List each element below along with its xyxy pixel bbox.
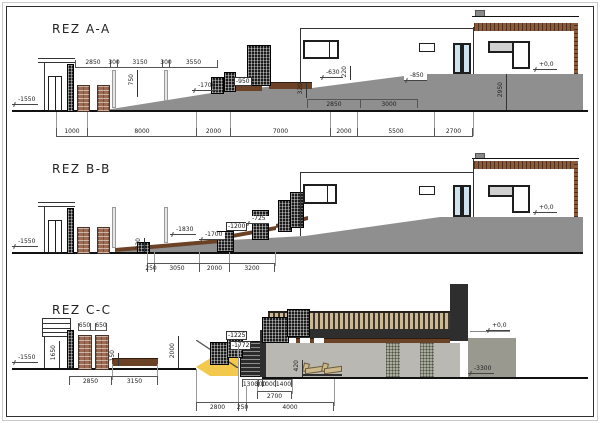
section-title: REZ B-B bbox=[52, 162, 111, 176]
hatched-column bbox=[420, 343, 434, 377]
dim-row-stairs-2: 2700 bbox=[257, 391, 292, 399]
dim-line bbox=[137, 70, 138, 97]
window-small bbox=[419, 43, 435, 52]
gabion-pier bbox=[67, 208, 74, 254]
door-divider bbox=[55, 221, 56, 252]
dim-line bbox=[59, 341, 60, 368]
window-l-vertical bbox=[512, 41, 530, 69]
window-large bbox=[303, 40, 339, 59]
pergola-post bbox=[164, 70, 168, 101]
extension-line bbox=[196, 369, 197, 406]
hatched-column bbox=[386, 343, 400, 377]
dim-label-vertical: 220 bbox=[342, 66, 348, 77]
pergola-post bbox=[164, 207, 168, 243]
level-mark: -1550 bbox=[12, 97, 38, 105]
dim-row-piers: 650 650 bbox=[78, 323, 107, 331]
extension-line bbox=[275, 252, 276, 266]
door bbox=[48, 76, 62, 111]
level-mark: -1700 bbox=[192, 83, 218, 91]
section-title: REZ A-A bbox=[52, 22, 111, 36]
level-mark: -725 bbox=[246, 216, 269, 224]
dim-label-vertical: 750 bbox=[129, 74, 135, 85]
level-box: -1225 bbox=[226, 331, 247, 340]
level-mark: -1550 bbox=[12, 239, 38, 247]
dim-label: 650 bbox=[86, 323, 116, 329]
dim-row-left-bottom: 2850 3150 bbox=[69, 376, 158, 385]
brick-pier bbox=[78, 335, 92, 370]
chair-base bbox=[303, 374, 323, 376]
dim-segment: 1400 bbox=[275, 379, 292, 387]
canopy-line bbox=[38, 202, 75, 203]
dim-label-vertical: 1650 bbox=[51, 345, 57, 360]
level-mark: -850 bbox=[404, 73, 427, 81]
dim-line bbox=[118, 353, 119, 366]
extension-line bbox=[334, 379, 335, 406]
wall-edge bbox=[473, 27, 474, 74]
dim-row-bottom: 250 3050 2000 3200 bbox=[147, 263, 275, 272]
dim-row-mid: 2850 3000 bbox=[307, 99, 418, 108]
window-divider bbox=[329, 42, 330, 57]
roof-top-line bbox=[472, 158, 579, 159]
dim-label-vertical: 2000 bbox=[170, 343, 176, 358]
dim-segment: 3200 bbox=[229, 263, 275, 272]
roof-top-line bbox=[472, 16, 579, 17]
roof-wood-fascia bbox=[474, 161, 577, 169]
dim-row-bottom: 1000 8000 2000 7000 2000 5500 2700 bbox=[56, 128, 473, 137]
level-box: -1772 bbox=[230, 341, 251, 350]
door-glass bbox=[455, 187, 460, 215]
dim-segment: 5500 bbox=[357, 128, 434, 137]
chair-base bbox=[322, 374, 342, 376]
dim-label-vertical: 2950 bbox=[498, 82, 504, 97]
dim-label-vertical: 420 bbox=[294, 360, 300, 371]
chimney-wall bbox=[450, 284, 468, 341]
dim-label: 3150 bbox=[102, 379, 167, 385]
dim-label: 3550 bbox=[160, 60, 227, 66]
level-mark: -1700 bbox=[199, 232, 225, 240]
dim-label: 3200 bbox=[220, 266, 284, 272]
wall-top-line bbox=[300, 28, 473, 29]
lounge-chair bbox=[303, 363, 323, 376]
dim-label: 2700 bbox=[425, 129, 482, 135]
brick-pier bbox=[97, 85, 110, 112]
structure-line bbox=[42, 323, 71, 324]
wall-edge bbox=[44, 206, 45, 252]
wall-edge bbox=[473, 158, 474, 217]
wood-wall-edge bbox=[574, 161, 578, 217]
dim-segment: 7000 bbox=[230, 128, 330, 137]
level-mark: -1830 bbox=[170, 227, 196, 235]
level-box: -1200 bbox=[226, 222, 247, 231]
gabion-block bbox=[290, 192, 304, 228]
level-box: -950 bbox=[234, 77, 252, 86]
dim-line bbox=[144, 238, 145, 252]
brick-pier bbox=[77, 85, 90, 112]
extension-line bbox=[238, 344, 239, 406]
dim-segment: 8000 bbox=[87, 128, 196, 137]
dim-label-vertical: 320 bbox=[298, 83, 304, 94]
wall-edge bbox=[44, 337, 45, 368]
dim-label: 3000 bbox=[351, 102, 427, 108]
dim-label: 4000 bbox=[237, 405, 343, 411]
level-mark: -3300 bbox=[468, 366, 494, 374]
level-mark: +0,0 bbox=[533, 62, 557, 70]
level-mark: +0,0 bbox=[486, 323, 510, 331]
gabion-block bbox=[262, 317, 289, 343]
dim-line bbox=[178, 336, 179, 368]
lounge-chair bbox=[322, 363, 342, 376]
pergola-post bbox=[112, 70, 116, 108]
chair-seat bbox=[324, 366, 342, 375]
wall-top-line bbox=[300, 172, 473, 173]
dim-label-vertical: 150 bbox=[110, 350, 116, 361]
wall-edge bbox=[44, 62, 45, 110]
gabion-pier bbox=[67, 330, 74, 370]
wall-edge bbox=[300, 28, 301, 84]
level-leader-line bbox=[470, 331, 510, 332]
dim-line bbox=[306, 83, 307, 98]
door bbox=[48, 220, 62, 253]
dim-segment: 650 bbox=[95, 323, 107, 331]
section-title: REZ C-C bbox=[52, 303, 112, 317]
dim-segment: 4000 bbox=[246, 402, 334, 411]
dim-segment: 3550 bbox=[169, 60, 218, 68]
door-glass bbox=[464, 45, 469, 72]
dim-segment: 3150 bbox=[111, 376, 158, 385]
entry-door bbox=[453, 43, 471, 74]
level-mark: +0,0 bbox=[533, 205, 557, 213]
roof-wood-fascia bbox=[474, 23, 577, 31]
pergola-post bbox=[112, 207, 116, 248]
dim-label: 1400 bbox=[266, 382, 301, 388]
dim-segment: 2700 bbox=[434, 128, 473, 137]
level-mark: -1550 bbox=[12, 355, 38, 363]
dim-line bbox=[302, 360, 303, 377]
drawing-sheet: REZ A-A bbox=[0, 0, 600, 423]
brick-pier bbox=[97, 227, 110, 254]
dim-line bbox=[350, 66, 351, 80]
window-large bbox=[303, 184, 337, 204]
wood-wall-edge bbox=[574, 23, 578, 74]
brick-pier bbox=[77, 227, 90, 254]
entry-door bbox=[453, 185, 471, 217]
dim-row-stairs-1: 1300 300 1000 1400 bbox=[242, 379, 292, 387]
structure-line bbox=[42, 328, 71, 329]
level-mark: -630 bbox=[320, 70, 343, 78]
dim-segment: 2700 bbox=[257, 391, 292, 399]
dim-row-top: 2850 300 3150 300 3550 bbox=[75, 60, 218, 68]
door-glass bbox=[455, 45, 460, 72]
dim-row-stairs-3: 2800 250 4000 bbox=[196, 402, 334, 411]
dim-segment: 3000 bbox=[360, 99, 418, 108]
brick-pier bbox=[95, 335, 109, 370]
dim-label: 2700 bbox=[248, 394, 301, 400]
window-small bbox=[419, 186, 435, 195]
gabion-pier bbox=[67, 64, 74, 112]
gabion-block bbox=[287, 309, 310, 337]
window-l-vertical bbox=[512, 185, 530, 213]
dim-label-vertical: 230 bbox=[136, 238, 142, 249]
ground-line-lower bbox=[262, 377, 588, 379]
canopy-line bbox=[38, 58, 75, 59]
wall-edge bbox=[300, 172, 301, 236]
door-divider bbox=[55, 77, 56, 110]
window-divider bbox=[327, 186, 328, 202]
door-glass bbox=[464, 187, 469, 215]
dim-line bbox=[506, 74, 507, 110]
